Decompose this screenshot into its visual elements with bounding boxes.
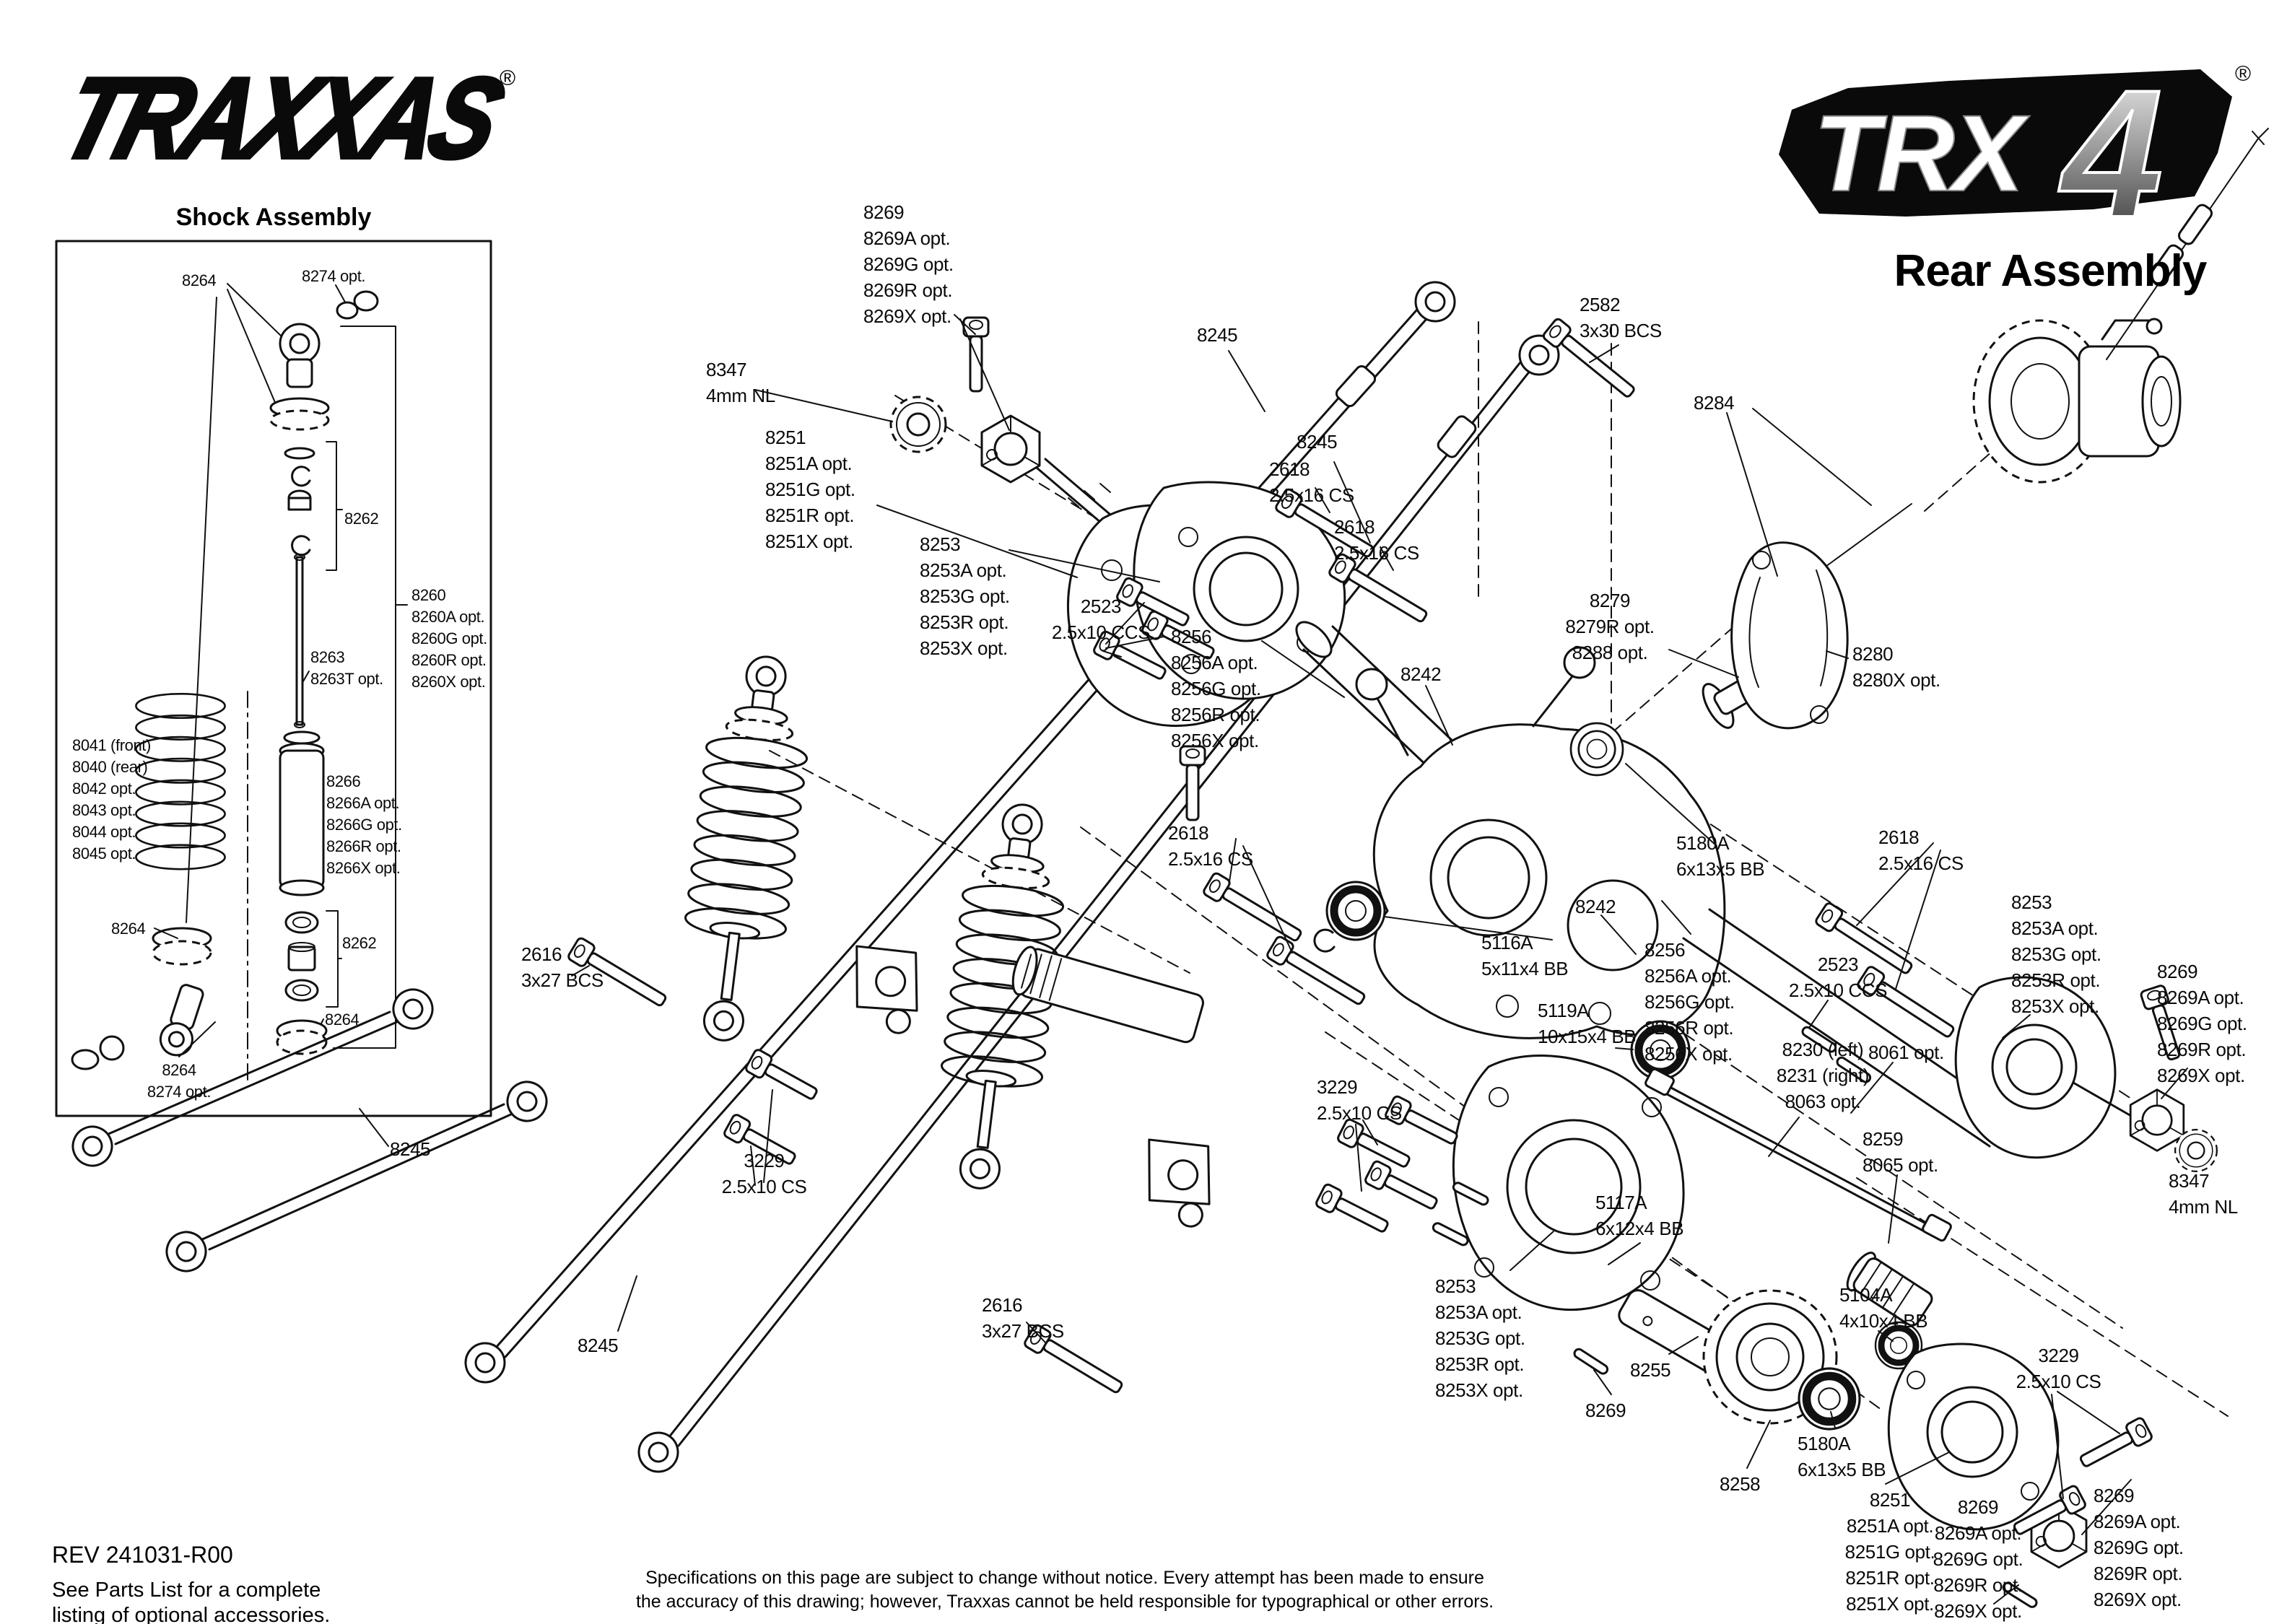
part-label: 8260 8260A opt. 8260G opt. 8260R opt. 82… [411, 585, 487, 693]
part-label: 2618 2.5x16 CS [1334, 514, 1419, 566]
part-label: 5116A 5x11x4 BB [1481, 930, 1568, 982]
part-label: 2616 3x27 BCS [521, 941, 604, 993]
part-label: 8245 [390, 1136, 430, 1162]
footer-note: See Parts List for a complete listing of… [52, 1578, 330, 1624]
trx4-reg-mark: ® [2235, 62, 2251, 86]
part-label: 8269 8269A opt. 8269G opt. 8269R opt. 82… [2157, 959, 2247, 1088]
portal-upper-left [891, 318, 1345, 726]
parts-diagram-page: TRAXXAS ® TRX 4 ® [0, 0, 2274, 1624]
part-label: 8242 [1575, 894, 1616, 920]
part-label: 2523 2.5x10 CCS [1025, 593, 1177, 645]
part-label: 8256 8256A opt. 8256G opt. 8256R opt. 82… [1171, 624, 1261, 754]
revision-number: REV 241031-R00 [52, 1542, 233, 1568]
shock-mount-left [841, 940, 929, 1036]
part-label: 8262 [342, 933, 376, 954]
part-label: 8280 8280X opt. [1852, 641, 1940, 693]
part-label: 2618 2.5x16 CS [1269, 456, 1354, 508]
portal-cover-bottom-left [1453, 1055, 1683, 1309]
part-label: 5104A 4x10x4 BB [1839, 1282, 1927, 1334]
part-label: 8245 [1297, 429, 1337, 455]
part-label: 8255 [1630, 1357, 1670, 1383]
part-label: 8251 8251A opt. 8251G opt. 8251R opt. 82… [765, 424, 855, 554]
part-label: 8269 8269A opt. 8269G opt. 8269R opt. 82… [2094, 1483, 2184, 1612]
part-label: 8258 [1720, 1471, 1760, 1497]
part-label: 3229 2.5x10 CS [1981, 1343, 2136, 1394]
part-label: 8269 [1585, 1397, 1626, 1423]
part-label: 8264 [182, 270, 216, 292]
part-label: 8256 8256A opt. 8256G opt. 8256R opt. 82… [1644, 937, 1735, 1067]
disclaimer-text: Specifications on this page are subject … [614, 1566, 1516, 1614]
page-title: Rear Assembly [1855, 245, 2245, 297]
part-label: 8279 8279R opt. 8288 opt. [1523, 588, 1696, 665]
part-label: 8264 8274 opt. [128, 1060, 230, 1103]
part-label: 8264 [325, 1009, 359, 1031]
part-label: 3229 2.5x10 CS [1317, 1074, 1402, 1126]
shock-mount-right [1133, 1134, 1221, 1229]
brand-logo-text: TRAXXAS [49, 55, 515, 182]
part-label: 8274 opt. [302, 266, 365, 287]
part-label: 8245 [578, 1332, 618, 1358]
traxxas-logo: TRAXXAS ® [49, 55, 515, 182]
part-label: 2582 3x30 BCS [1580, 292, 1662, 344]
part-label: 5117A 6x12x4 BB [1595, 1189, 1683, 1241]
part-label: 8263 8263T opt. [310, 647, 383, 690]
part-label: 5180A 6x13x5 BB [1676, 830, 1764, 882]
inset-title: Shock Assembly [56, 204, 491, 232]
brand-reg-mark: ® [500, 66, 515, 90]
part-label: 8262 [344, 508, 378, 530]
part-label: 8253 8253A opt. 8253G opt. 8253R opt. 82… [2011, 889, 2101, 1019]
part-label: 8245 [1197, 322, 1237, 348]
part-label: 8259 8065 opt. [1863, 1126, 1938, 1178]
shock-left [671, 651, 819, 1047]
part-label: 2523 2.5x10 CCS [1761, 951, 1914, 1003]
part-label: 2618 2.5x16 CS [1878, 824, 1964, 876]
part-label: 5119A 10x15x4 BB [1538, 997, 1636, 1049]
part-label: 2618 2.5x16 CS [1168, 820, 1253, 872]
part-label: 8269 8269A opt. 8269G opt. 8269R opt. 82… [863, 199, 954, 329]
part-label: 8242 [1400, 661, 1441, 687]
part-label: 8284 [1694, 390, 1734, 416]
part-label: 8266 8266A opt. 8266G opt. 8266R opt. 82… [326, 771, 402, 879]
part-label: 8347 4mm NL [2169, 1168, 2238, 1220]
part-label: 8347 4mm NL [706, 357, 775, 409]
part-label: 3229 2.5x10 CS [690, 1148, 838, 1200]
part-label: 8253 8253A opt. 8253G opt. 8253R opt. 82… [920, 531, 1010, 661]
part-label: 8264 [111, 918, 145, 940]
part-label: 5180A 6x13x5 BB [1798, 1431, 1886, 1483]
part-label: 2616 3x27 BCS [982, 1292, 1064, 1344]
part-label: 8253 8253A opt. 8253G opt. 8253R opt. 82… [1435, 1273, 1525, 1403]
trx4-logo: TRX 4 ® [1779, 53, 2251, 256]
part-label: 8061 opt. [1868, 1039, 1944, 1065]
trx4-numeral: 4 [2058, 53, 2163, 256]
part-label: 8269 8269A opt. 8269G opt. 8269R opt. 82… [1913, 1494, 2043, 1624]
part-label: 8041 (front) 8040 (rear) 8042 opt. 8043 … [72, 735, 151, 865]
trx-logo-text: TRX [1813, 92, 2030, 214]
driveshaft-tube [1009, 944, 1206, 1044]
